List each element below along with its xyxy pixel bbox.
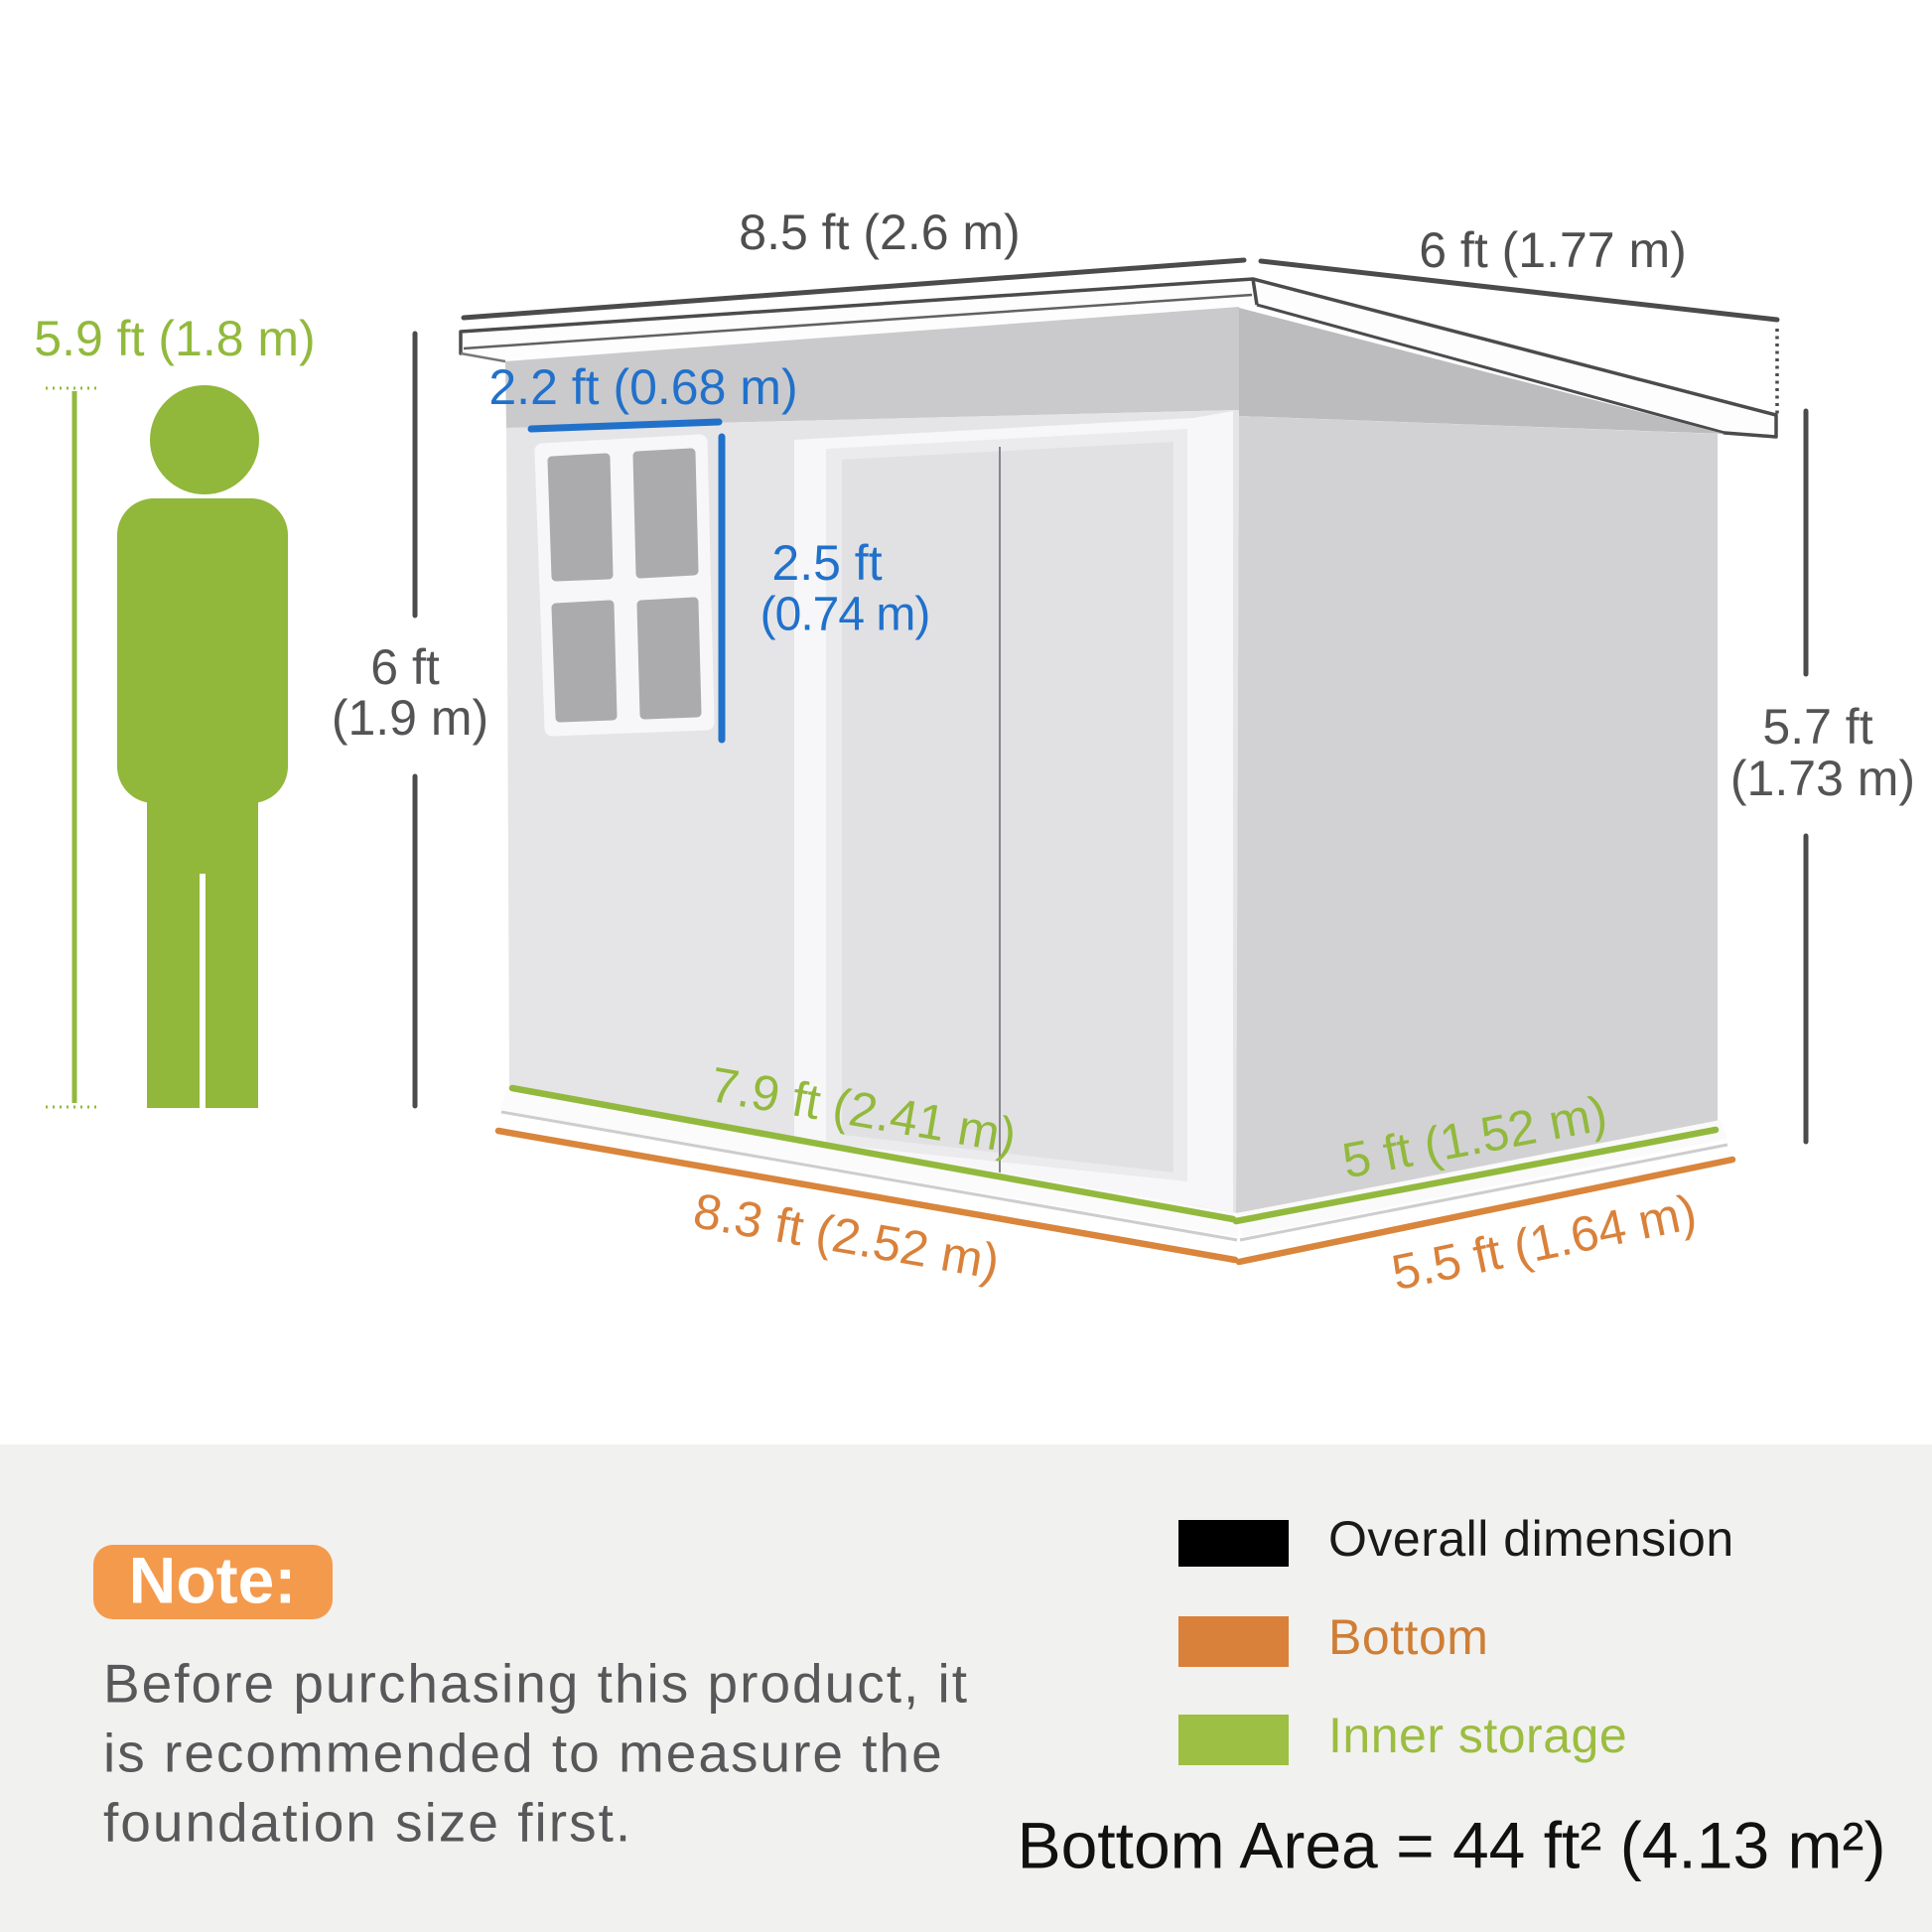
svg-text:(1.9 m): (1.9 m)	[332, 690, 488, 746]
svg-text:(0.74 m): (0.74 m)	[760, 589, 930, 641]
svg-text:Overall dimension: Overall dimension	[1328, 1511, 1734, 1567]
svg-text:8.5 ft (2.6 m): 8.5 ft (2.6 m)	[739, 205, 1020, 260]
svg-text:Before purchasing this product: Before purchasing this product, it	[103, 1653, 969, 1715]
svg-text:(1.73 m): (1.73 m)	[1730, 751, 1915, 806]
svg-text:5.7 ft: 5.7 ft	[1762, 699, 1872, 755]
svg-text:Bottom: Bottom	[1328, 1609, 1488, 1665]
svg-text:foundation size first.: foundation size first.	[103, 1792, 632, 1854]
svg-text:2.2 ft (0.68 m): 2.2 ft (0.68 m)	[488, 359, 797, 415]
svg-text:Inner storage: Inner storage	[1328, 1708, 1627, 1763]
svg-text:2.5 ft: 2.5 ft	[771, 535, 882, 591]
svg-text:5.9 ft (1.8 m): 5.9 ft (1.8 m)	[34, 311, 315, 366]
svg-text:is recommended to measure the: is recommended to measure the	[103, 1723, 944, 1784]
svg-text:6 ft (1.77 m): 6 ft (1.77 m)	[1419, 222, 1687, 278]
svg-text:6 ft: 6 ft	[370, 639, 440, 695]
svg-text:Note:: Note:	[129, 1543, 297, 1616]
svg-text:Bottom Area = 44 ft² (4.13 m²): Bottom Area = 44 ft² (4.13 m²)	[1018, 1808, 1886, 1881]
